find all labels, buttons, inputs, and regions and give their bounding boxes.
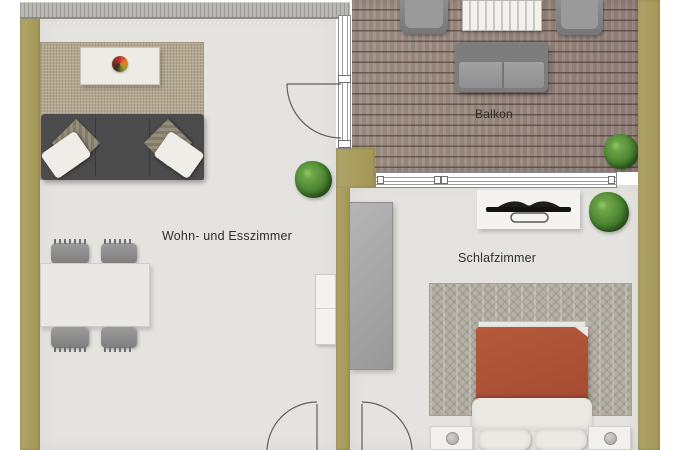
wall-right — [638, 0, 660, 450]
wall-corner-block — [336, 148, 375, 188]
bed-sheet-fold — [472, 398, 592, 432]
window-frame-cap — [338, 140, 351, 148]
living-room-label: Wohn- und Esszimmer — [162, 229, 292, 243]
bedroom-balcony-window — [375, 172, 617, 188]
plant-living-room — [295, 161, 332, 198]
nightstand-lamp — [446, 432, 459, 445]
dining-chair — [101, 327, 137, 348]
balcony-door-window — [338, 15, 351, 149]
balcony-table — [462, 0, 542, 31]
floor-plan: Wohn- und Esszimmer Balkon Schlafzimmer — [0, 0, 675, 450]
loveseat-seam — [502, 62, 504, 88]
wardrobe — [349, 202, 393, 370]
dining-chair — [51, 327, 89, 348]
wall-cabinet — [315, 274, 336, 345]
sofa — [41, 114, 204, 180]
bed-pillow-left — [478, 429, 531, 450]
tv-sideboard — [477, 190, 580, 229]
balcony-loveseat — [455, 42, 548, 92]
dining-table — [40, 263, 150, 327]
window-frame-cap — [441, 176, 448, 184]
wall-left — [20, 4, 40, 450]
nightstand-lamp — [604, 432, 617, 445]
tv-icon — [477, 190, 580, 229]
window-frame-cap — [608, 176, 615, 184]
window-frame-cap — [338, 75, 351, 83]
fruit-bowl — [112, 56, 128, 72]
coffee-table — [80, 47, 160, 85]
balcony-label: Balkon — [475, 107, 513, 121]
wall-middle — [336, 148, 350, 450]
bed-pillow-right — [534, 429, 587, 450]
bed-duvet — [476, 327, 588, 403]
balcony-armchair-left — [400, 0, 448, 34]
plant-balcony — [604, 134, 639, 169]
plant-bedroom — [589, 192, 629, 232]
bedroom-label: Schlafzimmer — [458, 251, 536, 265]
balcony-armchair-right — [556, 0, 603, 35]
nightstand-left — [430, 426, 473, 450]
dining-chair — [51, 243, 89, 264]
nightstand-right — [588, 426, 631, 450]
dining-chair — [101, 243, 137, 264]
window-frame-cap — [434, 176, 441, 184]
top-exterior-wall — [20, 2, 350, 19]
window-frame-cap — [377, 176, 384, 184]
